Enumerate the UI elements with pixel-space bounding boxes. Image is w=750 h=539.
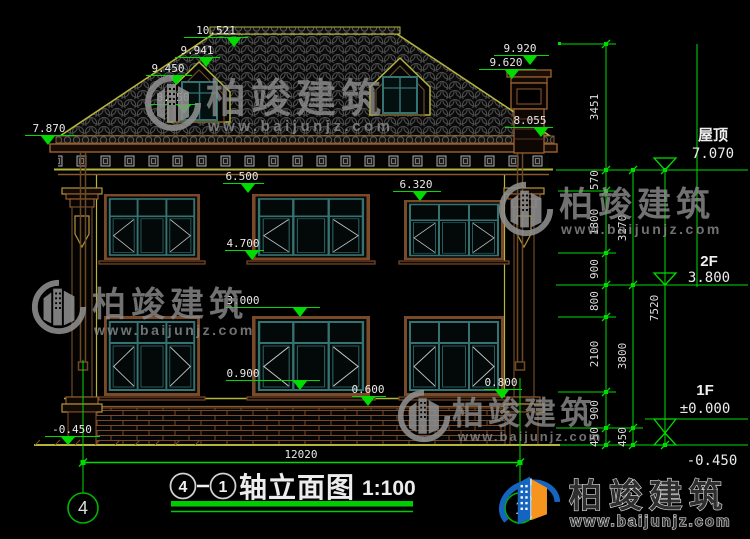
dim-dormer-ridge: 9.941 (180, 44, 213, 57)
axis-bubble-4-number: 4 (78, 498, 88, 518)
elev-1f-label: 1F (696, 382, 714, 399)
eave-tile-row (56, 136, 554, 143)
dim-win2f-sill: 4.700 (226, 237, 259, 250)
title-axis-from: 4 (179, 479, 188, 496)
dim-left-eave: 7.870 (32, 122, 65, 135)
chain-inner-3: 900 (588, 259, 601, 279)
dim-ground-left: -0.450 (52, 423, 92, 436)
dim-ridge: 10.521 (196, 24, 236, 37)
dim-win2f-top-right: 6.320 (399, 178, 432, 191)
watermark-url: www.baijunjz.com (457, 429, 602, 444)
dim-plinth: 0.600 (351, 383, 384, 396)
dim-pier-base: 0.800 (484, 376, 517, 389)
dim-win2f-top: 6.500 (225, 170, 258, 183)
watermark-url: www.baijunjz.com (93, 322, 255, 338)
watermark-brand: 柏竣建筑 (452, 395, 596, 431)
chain-inner-5: 2100 (588, 341, 601, 368)
chain-inner-4: 800 (588, 291, 601, 311)
brand-logo-text: 柏竣建筑 (569, 477, 729, 514)
cad-canvas: 10.521 9.941 9.450 8.550 7.870 9.920 9.6… (0, 0, 750, 539)
elev-roof-value: 7.070 (692, 146, 734, 162)
watermark-brand: 柏竣建筑 (92, 285, 248, 324)
fascia-band (50, 144, 557, 152)
window-2f-left (105, 195, 198, 259)
title-axis-to: 1 (219, 479, 228, 496)
dim-win1f-sill: 0.900 (226, 367, 259, 380)
elev-2f-label: 2F (700, 253, 718, 270)
elev-roof-label: 屋顶 (698, 127, 728, 144)
window-2f-right (406, 201, 503, 259)
watermark-brand: 柏竣建筑 (206, 77, 386, 121)
dentil-band (58, 154, 549, 168)
chimney (507, 70, 551, 153)
elev-ground-value: -0.450 (687, 453, 738, 469)
dim-right-eave: 8.055 (513, 114, 546, 127)
brand-logo-url: www.baijunjz.com (569, 513, 731, 530)
chain-inner-0: 3451 (588, 94, 601, 121)
title-scale: 1:100 (362, 477, 416, 500)
title-text: 轴立面图 (239, 471, 355, 503)
elevation-drawing: 10.521 9.941 9.450 8.550 7.870 9.920 9.6… (0, 0, 750, 539)
dim-chimney-top: 9.920 (503, 42, 536, 55)
chain-mid-2: 450 (616, 427, 629, 447)
title-underline-thick (171, 501, 413, 507)
chain-outer-0: 7520 (648, 295, 661, 322)
dim-total-width-label: 12020 (284, 448, 317, 461)
chain-mid-1: 3800 (616, 343, 629, 370)
watermark-url: www.baijunjz.com (207, 118, 393, 135)
elev-2f-value: 3.800 (688, 270, 730, 286)
dim-dormer-eave: 9.450 (151, 62, 184, 75)
watermark-brand: 柏竣建筑 (559, 185, 715, 224)
elev-1f-value: ±0.000 (680, 401, 731, 417)
watermark-url: www.baijunjz.com (560, 221, 722, 237)
window-2f-center (254, 195, 368, 259)
dim-chimney-cap: 9.620 (489, 56, 522, 69)
ridge-caps (210, 27, 400, 34)
